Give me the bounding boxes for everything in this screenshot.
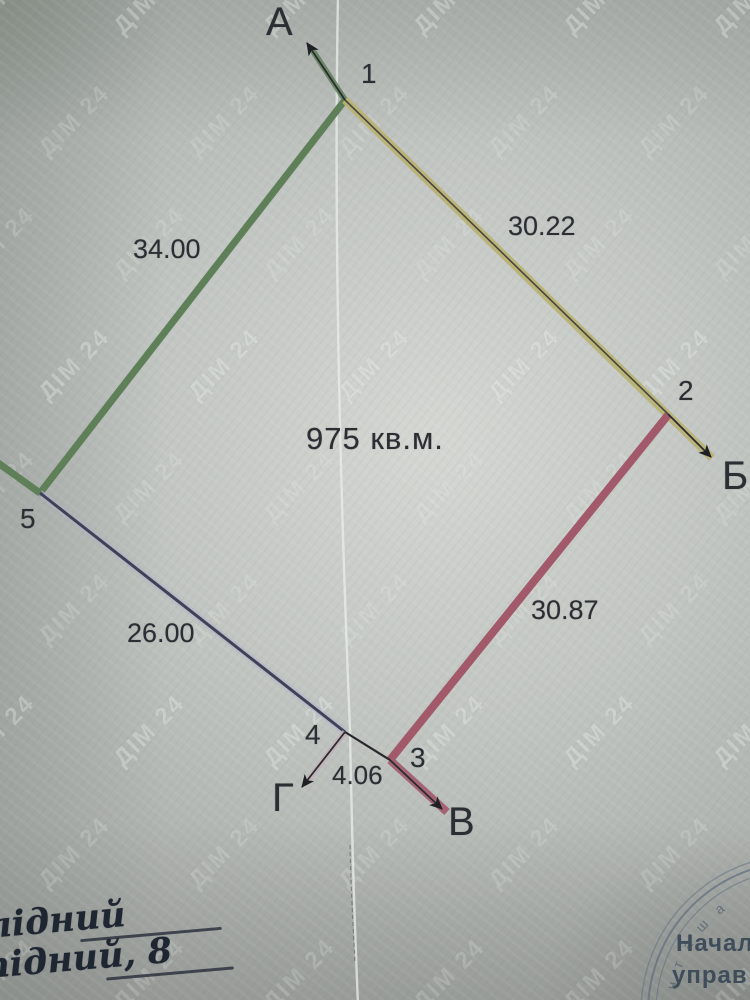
paper-crease bbox=[337, 0, 358, 1000]
area-label: 975 кв.м. bbox=[306, 423, 444, 454]
boundary-line-2-3 bbox=[390, 415, 668, 760]
vertex-label-4: 4 bbox=[305, 721, 321, 749]
direction-label-a: А bbox=[266, 2, 293, 42]
direction-b-arrow bbox=[668, 414, 711, 457]
direction-label-v: В bbox=[448, 802, 475, 842]
boundary-line-4-3 bbox=[345, 732, 390, 760]
direction-label-b: Б bbox=[722, 456, 748, 496]
vertex-label-5: 5 bbox=[20, 505, 36, 533]
direction-label-g: Г bbox=[272, 778, 294, 818]
boundary-line-5-4 bbox=[40, 493, 345, 732]
ink-line-1-2 bbox=[345, 100, 668, 414]
length-label-5-4: 26.00 bbox=[127, 620, 195, 647]
vertex-label-3: 3 bbox=[410, 744, 426, 772]
scanned-survey-document: ДІМ 24ДІМ 24ДІМ 24ДІМ 24ДІМ 24ДІМ 24ДІМ … bbox=[0, 0, 750, 1000]
direction-a-arrow bbox=[307, 43, 345, 100]
length-label-1-2: 30.22 bbox=[508, 213, 576, 240]
vertex-label-1: 1 bbox=[361, 60, 377, 88]
length-label-2-3: 30.87 bbox=[531, 597, 599, 624]
boundary-line-1-5 bbox=[0, 100, 345, 493]
stamp-text-line-2: управ bbox=[672, 962, 748, 990]
vertex-label-2: 2 bbox=[678, 377, 694, 405]
stamp-text-line-1: Начал bbox=[676, 930, 750, 958]
plot-diagram: о н т а ш а bbox=[0, 0, 750, 1000]
length-label-4-3: 4.06 bbox=[332, 762, 383, 788]
length-label-1-5: 34.00 bbox=[133, 236, 201, 263]
